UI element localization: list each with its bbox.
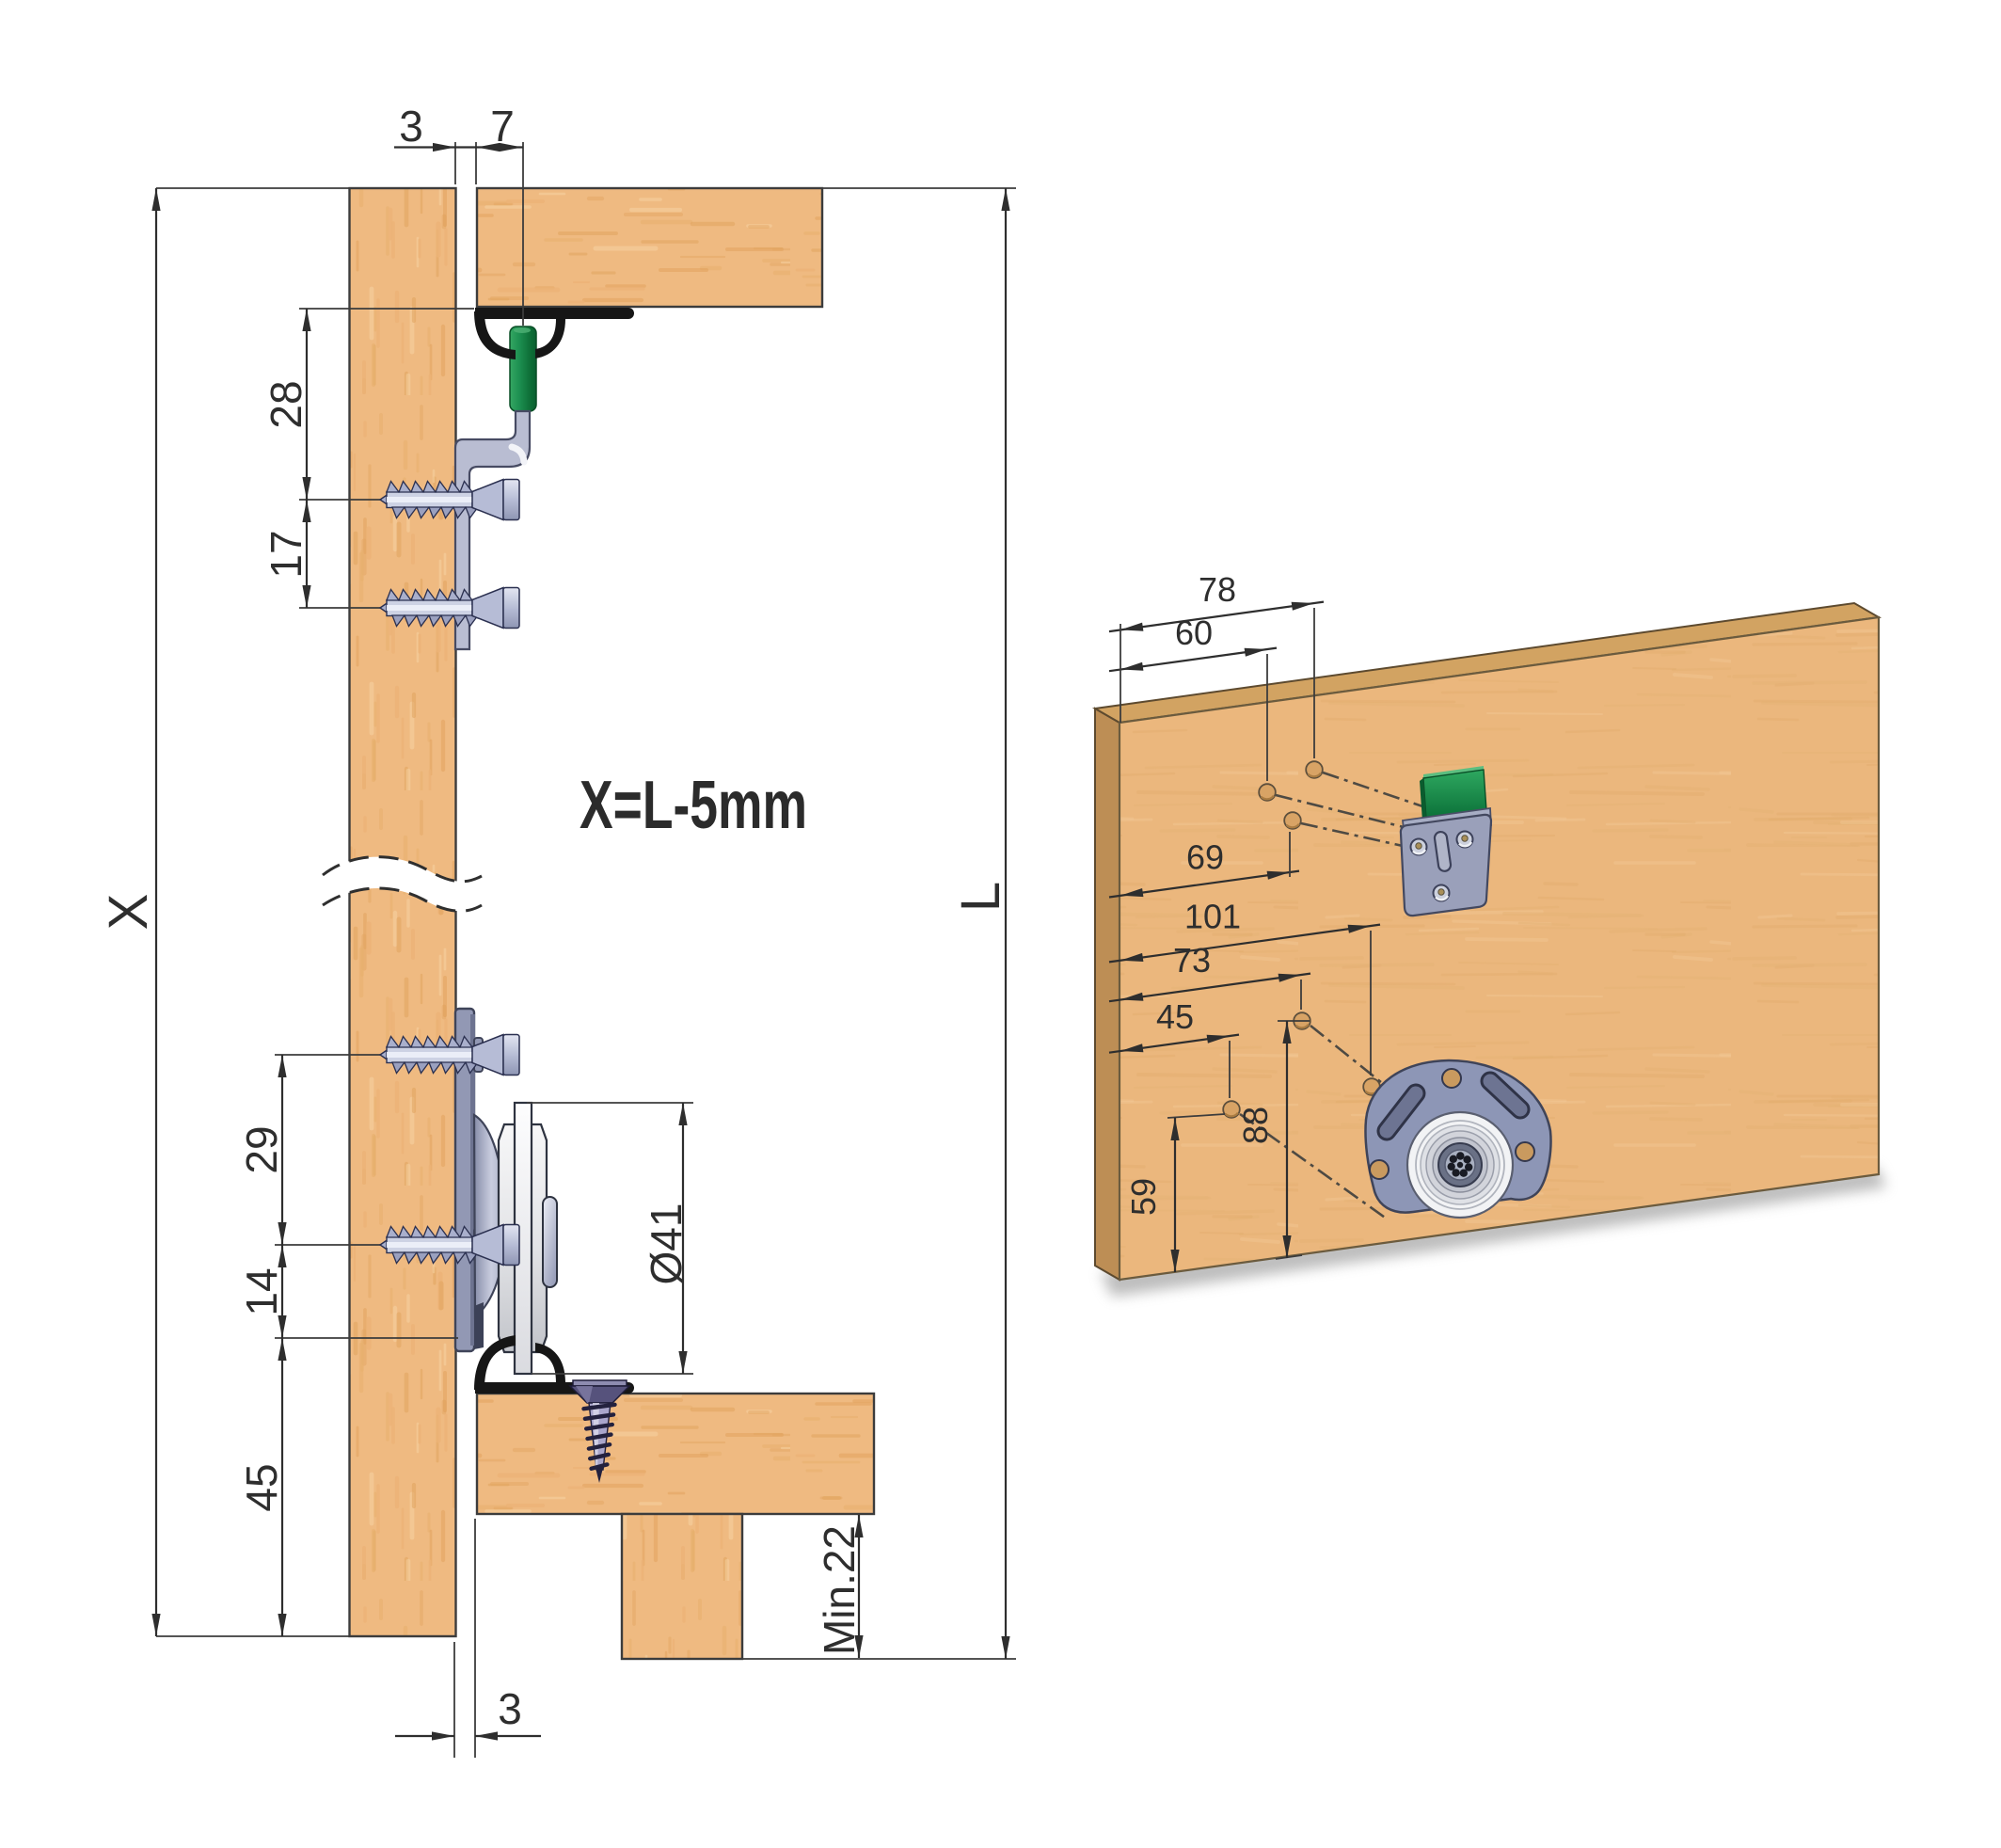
svg-text:3: 3 bbox=[498, 1684, 522, 1733]
svg-text:17: 17 bbox=[262, 530, 310, 578]
svg-text:Min.22: Min.22 bbox=[815, 1525, 864, 1655]
svg-text:88: 88 bbox=[1236, 1107, 1275, 1144]
svg-text:73: 73 bbox=[1173, 941, 1211, 980]
svg-text:60: 60 bbox=[1175, 613, 1213, 652]
svg-text:45: 45 bbox=[1156, 997, 1194, 1036]
svg-text:3: 3 bbox=[399, 102, 423, 151]
svg-text:69: 69 bbox=[1186, 837, 1224, 876]
svg-text:101: 101 bbox=[1184, 897, 1241, 935]
svg-text:X=L-5mm: X=L-5mm bbox=[580, 768, 807, 843]
svg-text:7: 7 bbox=[490, 102, 515, 151]
svg-text:59: 59 bbox=[1124, 1178, 1163, 1216]
svg-text:28: 28 bbox=[262, 380, 310, 428]
svg-text:X: X bbox=[98, 894, 159, 931]
svg-text:45: 45 bbox=[237, 1463, 286, 1511]
svg-text:29: 29 bbox=[237, 1125, 286, 1173]
svg-text:L: L bbox=[950, 882, 1011, 912]
svg-text:Ø41: Ø41 bbox=[642, 1203, 691, 1285]
svg-text:78: 78 bbox=[1199, 570, 1236, 609]
svg-text:14: 14 bbox=[237, 1267, 286, 1315]
